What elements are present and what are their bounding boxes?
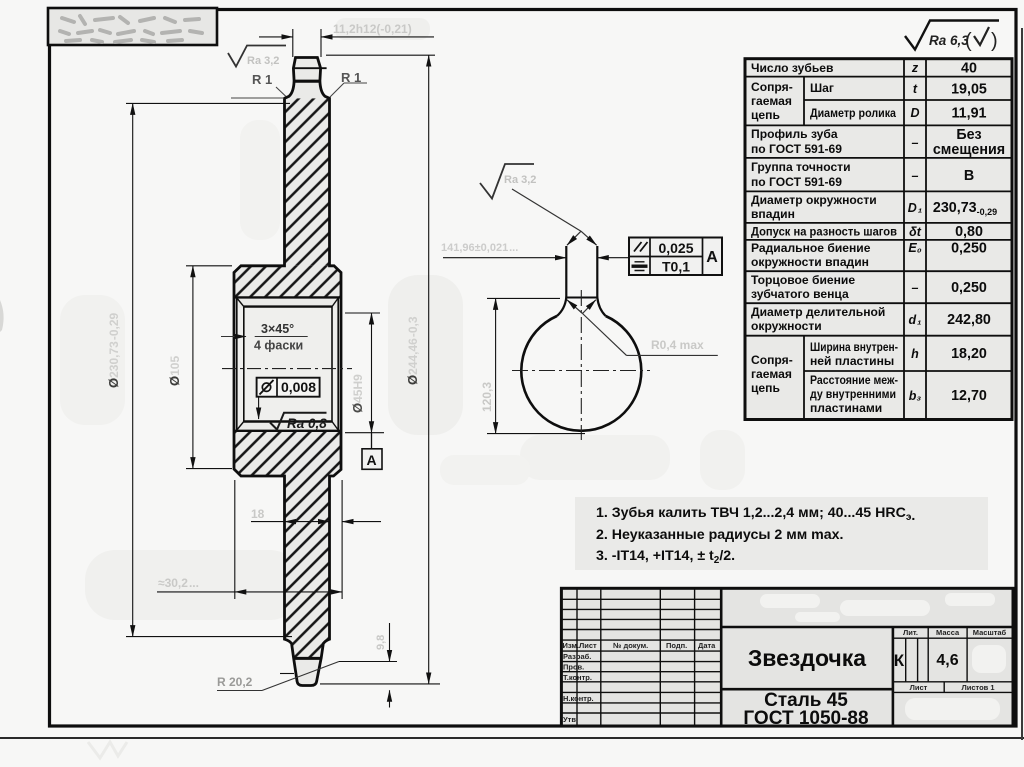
svg-text:0,008: 0,008	[281, 379, 316, 395]
svg-text:гаемая: гаемая	[751, 94, 792, 108]
svg-text:141,96±0,021 ...: 141,96±0,021 ...	[441, 242, 518, 254]
svg-text:40: 40	[961, 61, 977, 77]
svg-text:Лист: Лист	[579, 641, 597, 650]
svg-text:A: A	[367, 452, 377, 468]
svg-text:Профиль зуба: Профиль зуба	[751, 127, 838, 141]
svg-text:0,250: 0,250	[951, 241, 987, 257]
svg-text:b₃: b₃	[909, 389, 922, 403]
svg-text:Дата: Дата	[698, 641, 716, 650]
svg-text:Ø45H9: Ø45H9	[350, 374, 365, 413]
svg-text:Rа 0,8: Rа 0,8	[287, 416, 327, 431]
svg-text:по ГОСТ 591-69: по ГОСТ 591-69	[751, 142, 842, 156]
svg-text:В: В	[964, 168, 974, 184]
svg-text:R 1: R 1	[252, 72, 272, 87]
svg-text:0,025: 0,025	[658, 240, 693, 256]
svg-text:Утв.: Утв.	[563, 715, 578, 724]
svg-text:Диаметр ролика: Диаметр ролика	[810, 106, 896, 120]
svg-text:Шаг: Шаг	[810, 81, 834, 95]
svg-text:4,6: 4,6	[936, 652, 958, 669]
svg-text:цепь: цепь	[751, 108, 780, 122]
svg-text:Число зубьев: Число зубьев	[751, 61, 833, 75]
svg-text:Ø244,46 -0,3: Ø244,46 -0,3	[405, 316, 420, 385]
svg-text:Диаметр делительной: Диаметр делительной	[751, 305, 885, 319]
svg-text:Изм.: Изм.	[563, 641, 580, 650]
svg-text:Ø105: Ø105	[167, 356, 182, 386]
svg-text:11,91: 11,91	[952, 106, 987, 122]
svg-text:–: –	[912, 281, 919, 295]
svg-text:Ширина внутрен-: Ширина внутрен-	[810, 340, 898, 354]
svg-text:–: –	[912, 136, 919, 150]
svg-text:пластинами: пластинами	[810, 401, 882, 415]
svg-text:120,3: 120,3	[480, 382, 494, 412]
svg-text:Расстояние меж-: Расстояние меж-	[810, 373, 898, 387]
svg-text:Радиальное биение: Радиальное биение	[751, 241, 871, 255]
svg-text:9,8: 9,8	[375, 635, 387, 650]
svg-text:E₀: E₀	[908, 241, 921, 255]
svg-text:Сопря-: Сопря-	[751, 353, 793, 367]
svg-text:Т.контр.: Т.контр.	[563, 673, 592, 682]
svg-text:ду внутренними: ду внутренними	[810, 387, 896, 401]
svg-text:11,2h12(-0,21): 11,2h12(-0,21)	[333, 22, 412, 36]
svg-text:смещения: смещения	[933, 142, 1005, 158]
svg-text:R0,4 max: R0,4 max	[651, 338, 704, 352]
svg-text:Допуск на разность шагов: Допуск на разность шагов	[751, 225, 897, 239]
svg-text:h: h	[911, 347, 919, 361]
svg-text:2. Неуказанные радиусы 2 мм ma: 2. Неуказанные радиусы 2 мм max.	[596, 527, 844, 543]
svg-text:–: –	[912, 169, 919, 183]
svg-text:Звездочка: Звездочка	[748, 645, 866, 671]
svg-text:0,250: 0,250	[951, 280, 987, 296]
svg-text:12,70: 12,70	[951, 388, 987, 404]
svg-text:D: D	[910, 106, 919, 120]
svg-text:≈30,2 ...: ≈30,2 ...	[158, 576, 199, 590]
svg-text:D ₁: D ₁	[908, 201, 922, 215]
svg-text:Лит.: Лит.	[903, 628, 918, 637]
svg-text:№ докум.: № докум.	[613, 641, 648, 650]
svg-text:Разраб.: Разраб.	[563, 652, 591, 661]
svg-text:К: К	[894, 651, 905, 670]
svg-text:δt: δt	[909, 225, 922, 239]
svg-text:Н.контр.: Н.контр.	[563, 694, 594, 703]
svg-text:Группа точности: Группа точности	[751, 160, 851, 174]
svg-text:Масса: Масса	[936, 628, 960, 637]
svg-text:R 20,2: R 20,2	[217, 675, 253, 689]
svg-text:Rа 6,3: Rа 6,3	[929, 33, 969, 48]
svg-text:d ₁: d ₁	[908, 313, 921, 327]
svg-text:4 фаски: 4 фаски	[254, 339, 303, 353]
svg-text:Листов 1: Листов 1	[961, 683, 994, 692]
svg-text:19,05: 19,05	[951, 82, 987, 98]
svg-text:Ø230,73 -0,29: Ø230,73 -0,29	[106, 312, 121, 388]
svg-text:): )	[991, 30, 998, 52]
svg-text:T0,1: T0,1	[662, 259, 690, 275]
svg-text:Без: Без	[956, 127, 981, 143]
svg-text:ГОСТ 1050-88: ГОСТ 1050-88	[743, 708, 868, 729]
svg-text:Подп.: Подп.	[666, 641, 687, 650]
svg-text:по ГОСТ 591-69: по ГОСТ 591-69	[751, 175, 842, 189]
svg-text:Сопря-: Сопря-	[751, 80, 793, 94]
svg-text:Торцовое биение: Торцовое биение	[751, 273, 855, 287]
svg-text:Масштаб: Масштаб	[973, 628, 1007, 637]
svg-text:242,80: 242,80	[947, 312, 991, 328]
svg-text:A: A	[706, 249, 718, 266]
svg-text:3×45°: 3×45°	[261, 322, 294, 336]
svg-text:Rа 3,2: Rа 3,2	[247, 55, 279, 67]
svg-text:окружности впадин: окружности впадин	[751, 255, 869, 269]
svg-text:зубчатого венца: зубчатого венца	[751, 287, 849, 301]
svg-text:z: z	[911, 61, 919, 75]
svg-text:ней пластины: ней пластины	[810, 354, 894, 368]
svg-text:18: 18	[251, 507, 265, 521]
svg-text:0,80: 0,80	[955, 224, 983, 240]
svg-text:Пров.: Пров.	[563, 663, 584, 672]
svg-text:Rа 3,2: Rа 3,2	[504, 174, 536, 186]
svg-text:Диаметр окружности: Диаметр окружности	[751, 193, 877, 207]
svg-text:Лист: Лист	[910, 683, 928, 692]
svg-text:окружности: окружности	[751, 319, 822, 333]
svg-text:гаемая: гаемая	[751, 367, 792, 381]
svg-text:(: (	[965, 30, 972, 52]
svg-text:18,20: 18,20	[951, 346, 987, 362]
svg-text:впадин: впадин	[751, 207, 795, 221]
svg-text:цепь: цепь	[751, 381, 780, 395]
